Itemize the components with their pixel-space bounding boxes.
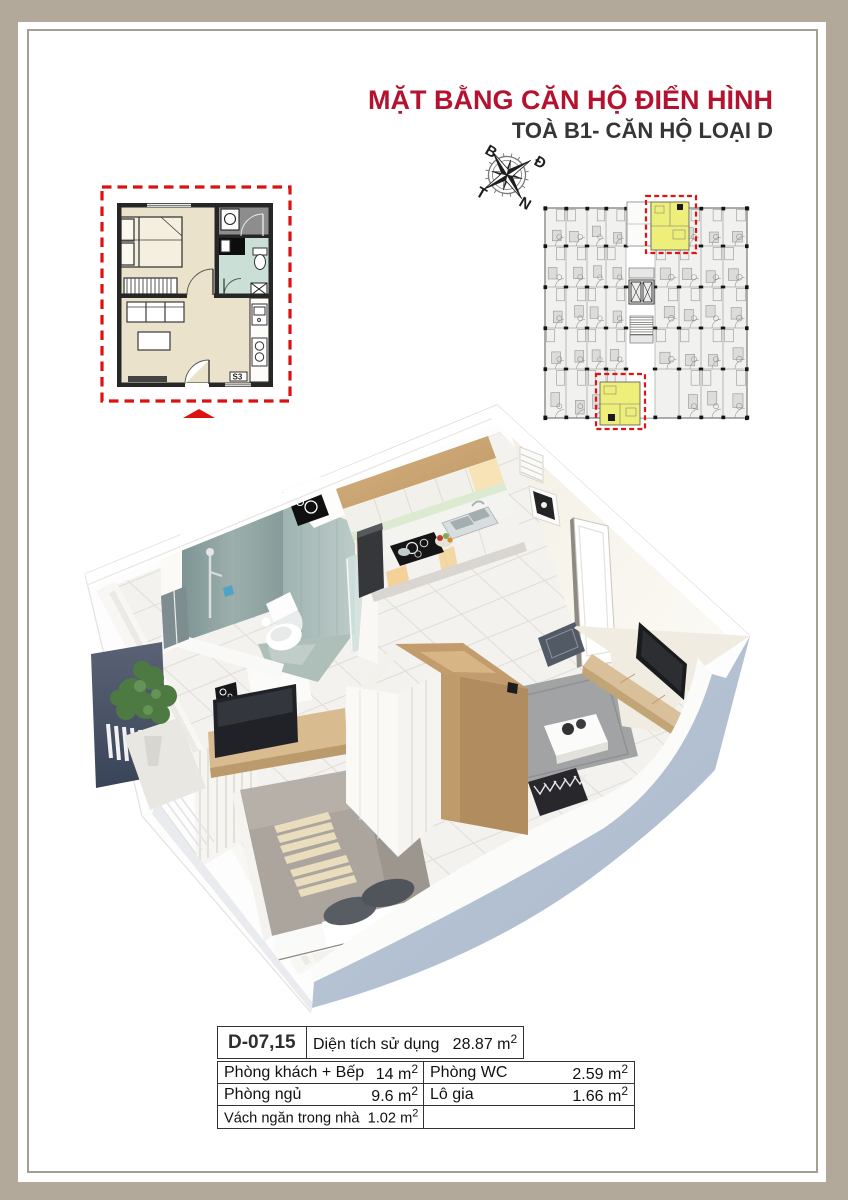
svg-text:S3: S3 (233, 373, 243, 382)
svg-text:N: N (516, 194, 534, 214)
svg-text:Đ: Đ (531, 153, 549, 173)
svg-text:T: T (473, 184, 489, 203)
